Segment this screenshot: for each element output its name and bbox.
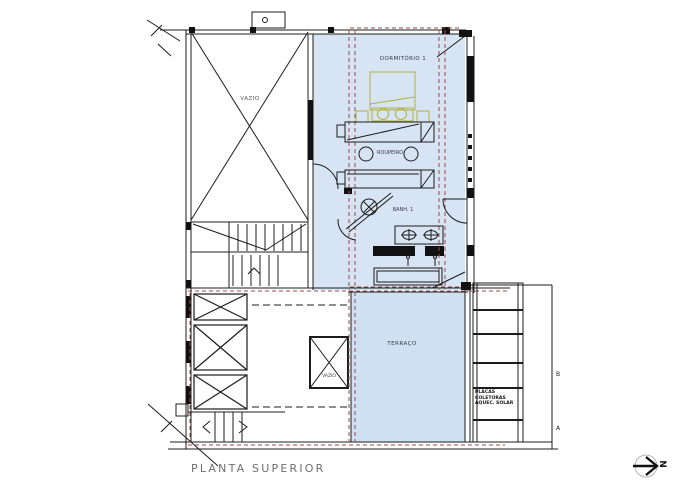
label-terraco: TERRAÇO <box>374 341 430 347</box>
label-void-upper: VAZIO <box>232 96 268 102</box>
void-cross-upper <box>191 32 308 220</box>
solar-collector-panels <box>473 283 523 442</box>
plan-linework <box>0 0 700 500</box>
label-roupeiro: ROUPEIRO <box>371 150 409 156</box>
lower-block-linework <box>176 294 348 442</box>
solar-line-3: AQUEC. SOLAR <box>475 401 521 407</box>
label-void-lower: VAZIO <box>311 374 347 379</box>
bed-furniture <box>356 72 429 122</box>
label-solar-collectors: PLACAS COLETORAS AQUEC. SOLAR <box>475 390 521 407</box>
label-dormitorio: DORMITÓRIO 1 <box>358 56 448 62</box>
section-label-a: A <box>553 425 563 432</box>
floorplan-canvas: VAZIO DORMITÓRIO 1 ROUPEIRO BANH. 1 TERR… <box>0 0 700 500</box>
section-cut-markers <box>147 20 218 466</box>
section-label-b: B <box>553 371 563 378</box>
bathroom-fixtures <box>313 164 467 285</box>
staircase-main <box>186 222 510 288</box>
wall-fills <box>186 27 474 404</box>
label-banheiro: BANH. 1 <box>386 207 420 213</box>
north-arrow-icon <box>633 455 657 477</box>
drawing-title: PLANTA SUPERIOR <box>191 462 325 475</box>
north-letter: N <box>657 458 667 470</box>
